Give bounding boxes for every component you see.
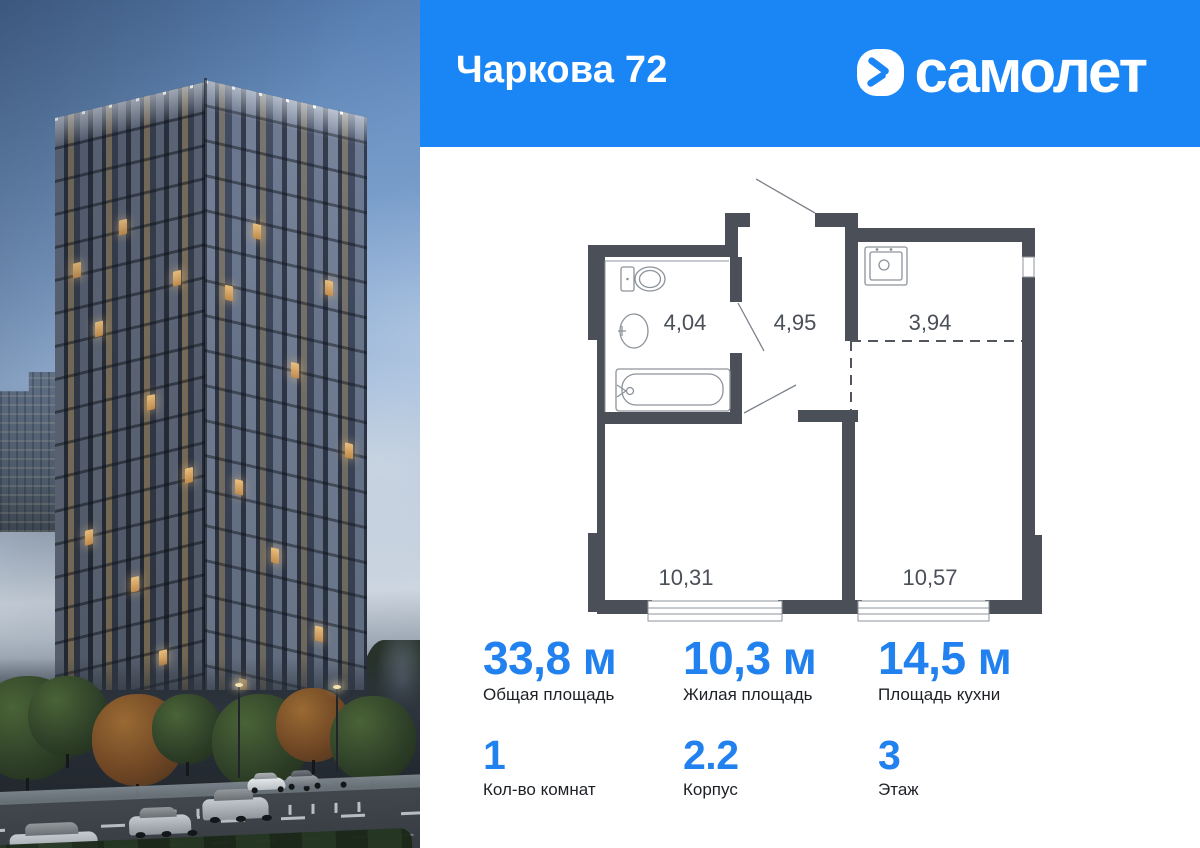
- bedroom-area-label: 10,57: [902, 565, 957, 590]
- kitchen-sink-icon: [865, 247, 907, 285]
- kitchen-area-label: 3,94: [909, 310, 952, 335]
- living-area-value: 10,3 м: [683, 634, 816, 682]
- floor-plan: 4,04 4,95 3,94 10,31 10,57: [586, 165, 1042, 637]
- living-room-area-label: 10,31: [658, 565, 713, 590]
- living-area-label: Жилая площадь: [683, 685, 816, 705]
- floor-plan-drawing: 4,04 4,95 3,94 10,31 10,57: [586, 165, 1042, 637]
- total-area-value: 33,8 м: [483, 634, 616, 682]
- brand-logo[interactable]: самолет: [857, 44, 1146, 100]
- stat-floor: 3 Этаж: [878, 733, 919, 800]
- project-title: Чаркова 72: [456, 50, 668, 90]
- brand-name: самолет: [914, 44, 1146, 100]
- samolet-arrow-icon: [857, 49, 904, 96]
- building-label: Корпус: [683, 780, 739, 800]
- total-area-label: Общая площадь: [483, 685, 616, 705]
- toilet-icon: [621, 267, 665, 291]
- zone-divider-dashed-line: [851, 341, 1022, 412]
- bathtub-icon: [616, 369, 730, 411]
- rooms-count-label: Кол-во комнат: [483, 780, 596, 800]
- vignette: [0, 0, 420, 848]
- room-area-labels: 4,04 4,95 3,94 10,31 10,57: [658, 310, 957, 590]
- listing-card: Чаркова 72 самолет: [0, 0, 1200, 848]
- kitchen-area-value: 14,5 м: [878, 634, 1011, 682]
- stat-building: 2.2 Корпус: [683, 733, 739, 800]
- rooms-count-value: 1: [483, 733, 596, 777]
- stat-kitchen-area: 14,5 м Площадь кухни: [878, 634, 1011, 705]
- building-photo: [0, 0, 420, 848]
- stat-rooms-count: 1 Кол-во комнат: [483, 733, 596, 800]
- stat-living-area: 10,3 м Жилая площадь: [683, 634, 816, 705]
- stat-total-area: 33,8 м Общая площадь: [483, 634, 616, 705]
- bathroom-area-label: 4,04: [664, 310, 707, 335]
- header-banner: Чаркова 72 самолет: [420, 0, 1200, 147]
- sink-icon: [618, 314, 648, 348]
- floor-value: 3: [878, 733, 919, 777]
- hallway-area-label: 4,95: [774, 310, 817, 335]
- building-value: 2.2: [683, 733, 739, 777]
- floor-label: Этаж: [878, 780, 919, 800]
- kitchen-area-label: Площадь кухни: [878, 685, 1011, 705]
